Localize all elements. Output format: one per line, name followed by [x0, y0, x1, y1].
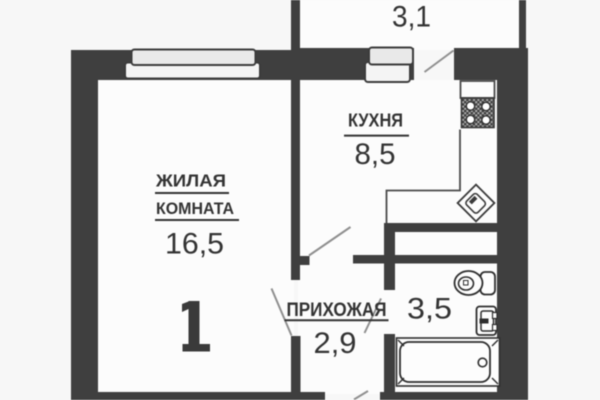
svg-text:2,9: 2,9: [314, 327, 357, 360]
svg-text:3,1: 3,1: [392, 1, 431, 34]
svg-text:ПРИХОЖАЯ: ПРИХОЖАЯ: [287, 299, 387, 321]
svg-text:8,5: 8,5: [355, 138, 396, 171]
svg-text:КОМНАТА: КОМНАТА: [156, 199, 234, 218]
svg-text:КУХНЯ: КУХНЯ: [348, 111, 403, 131]
svg-text:ЖИЛАЯ: ЖИЛАЯ: [155, 171, 226, 191]
svg-text:16,5: 16,5: [165, 228, 224, 261]
svg-text:3,5: 3,5: [407, 293, 452, 326]
